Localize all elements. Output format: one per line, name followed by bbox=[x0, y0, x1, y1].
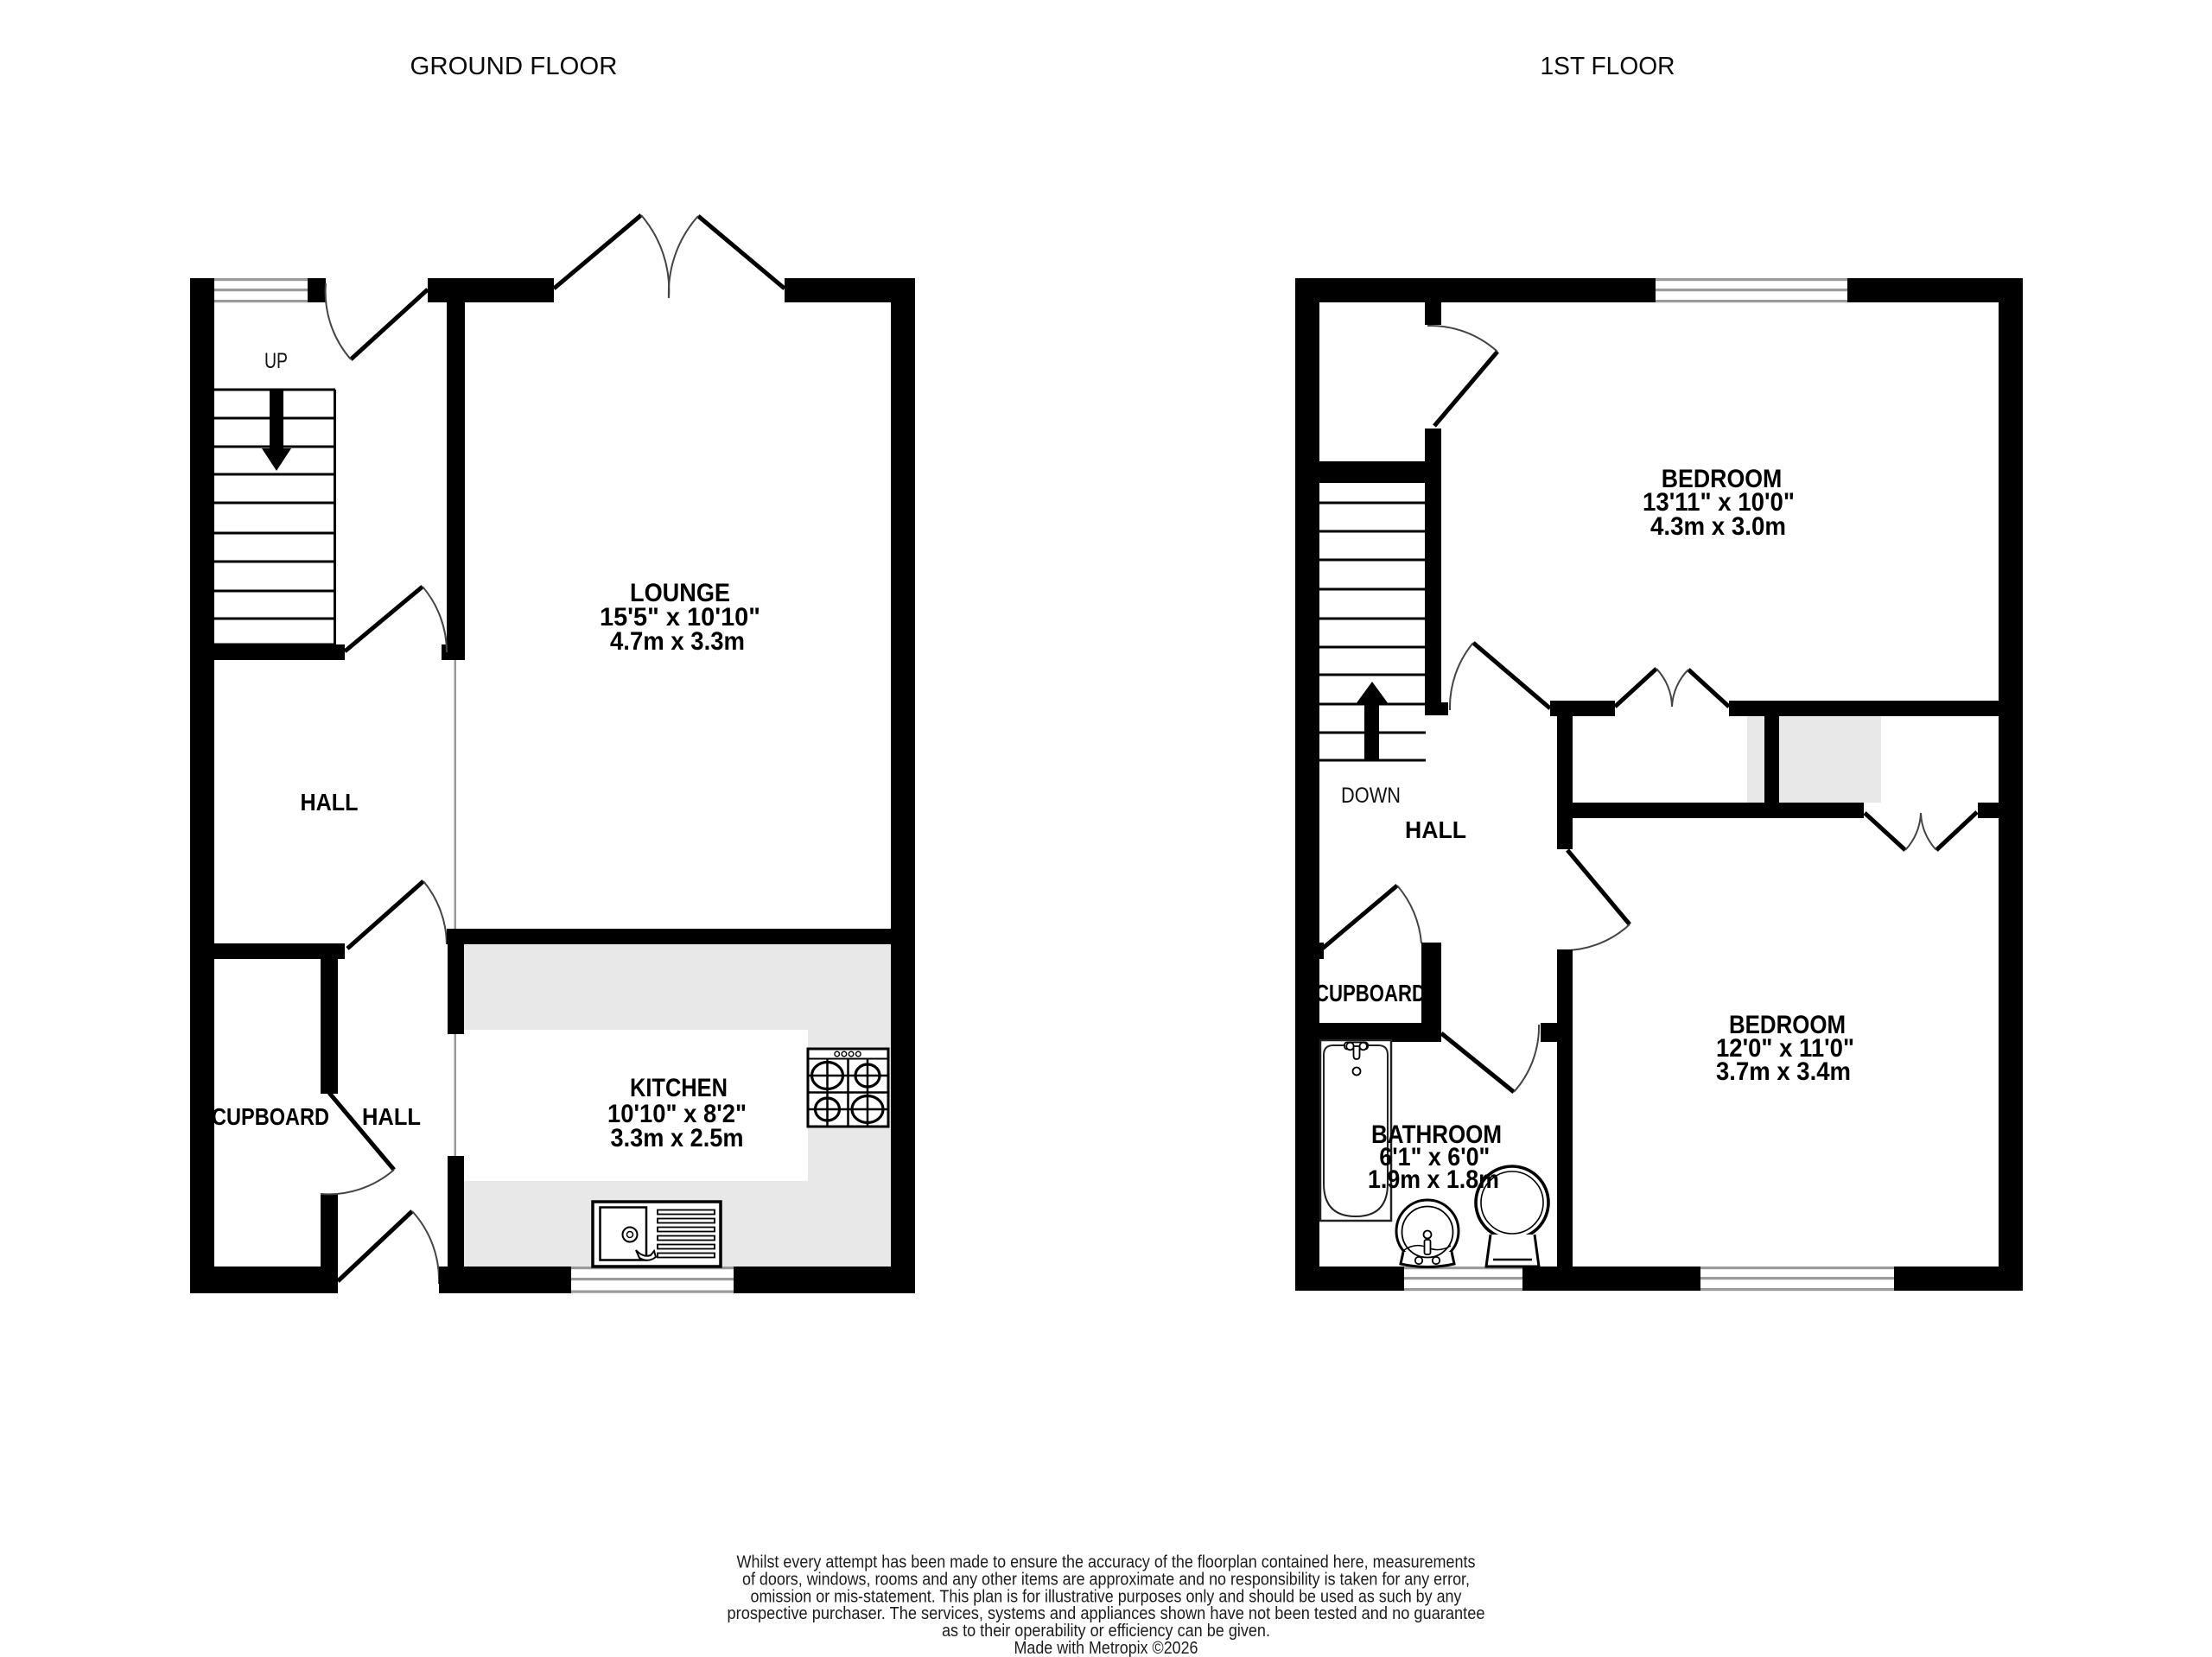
svg-text:CUPBOARD: CUPBOARD bbox=[212, 1103, 329, 1130]
svg-text:4.3m x 3.0m: 4.3m x 3.0m bbox=[1650, 512, 1786, 541]
svg-text:KITCHEN: KITCHEN bbox=[630, 1074, 728, 1102]
svg-text:4.7m x 3.3m: 4.7m x 3.3m bbox=[610, 627, 745, 656]
svg-text:3.7m x 3.4m: 3.7m x 3.4m bbox=[1716, 1057, 1851, 1086]
svg-text:HALL: HALL bbox=[362, 1103, 421, 1130]
svg-text:HALL: HALL bbox=[1405, 816, 1466, 843]
svg-text:DOWN: DOWN bbox=[1341, 784, 1401, 808]
svg-text:Whilst every attempt has been: Whilst every attempt has been made to en… bbox=[737, 1553, 1476, 1572]
svg-text:as to their operability or eff: as to their operability or efficiency ca… bbox=[942, 1622, 1270, 1641]
svg-text:HALL: HALL bbox=[301, 789, 359, 816]
svg-text:Made with Metropix ©2026: Made with Metropix ©2026 bbox=[1014, 1639, 1198, 1657]
svg-text:prospective purchaser. The ser: prospective purchaser. The services, sys… bbox=[728, 1604, 1485, 1623]
svg-text:of doors, windows, rooms and a: of doors, windows, rooms and any other i… bbox=[742, 1570, 1470, 1589]
svg-text:GROUND FLOOR: GROUND FLOOR bbox=[410, 53, 618, 80]
svg-text:CUPBOARD: CUPBOARD bbox=[1315, 980, 1426, 1006]
svg-text:1ST FLOOR: 1ST FLOOR bbox=[1541, 53, 1675, 80]
svg-text:3.3m x 2.5m: 3.3m x 2.5m bbox=[611, 1124, 744, 1152]
svg-text:UP: UP bbox=[264, 349, 288, 373]
svg-text:1.9m x 1.8m: 1.9m x 1.8m bbox=[1368, 1165, 1499, 1194]
svg-text:omission or mis-statement. Thi: omission or mis-statement. This plan is … bbox=[751, 1587, 1462, 1606]
